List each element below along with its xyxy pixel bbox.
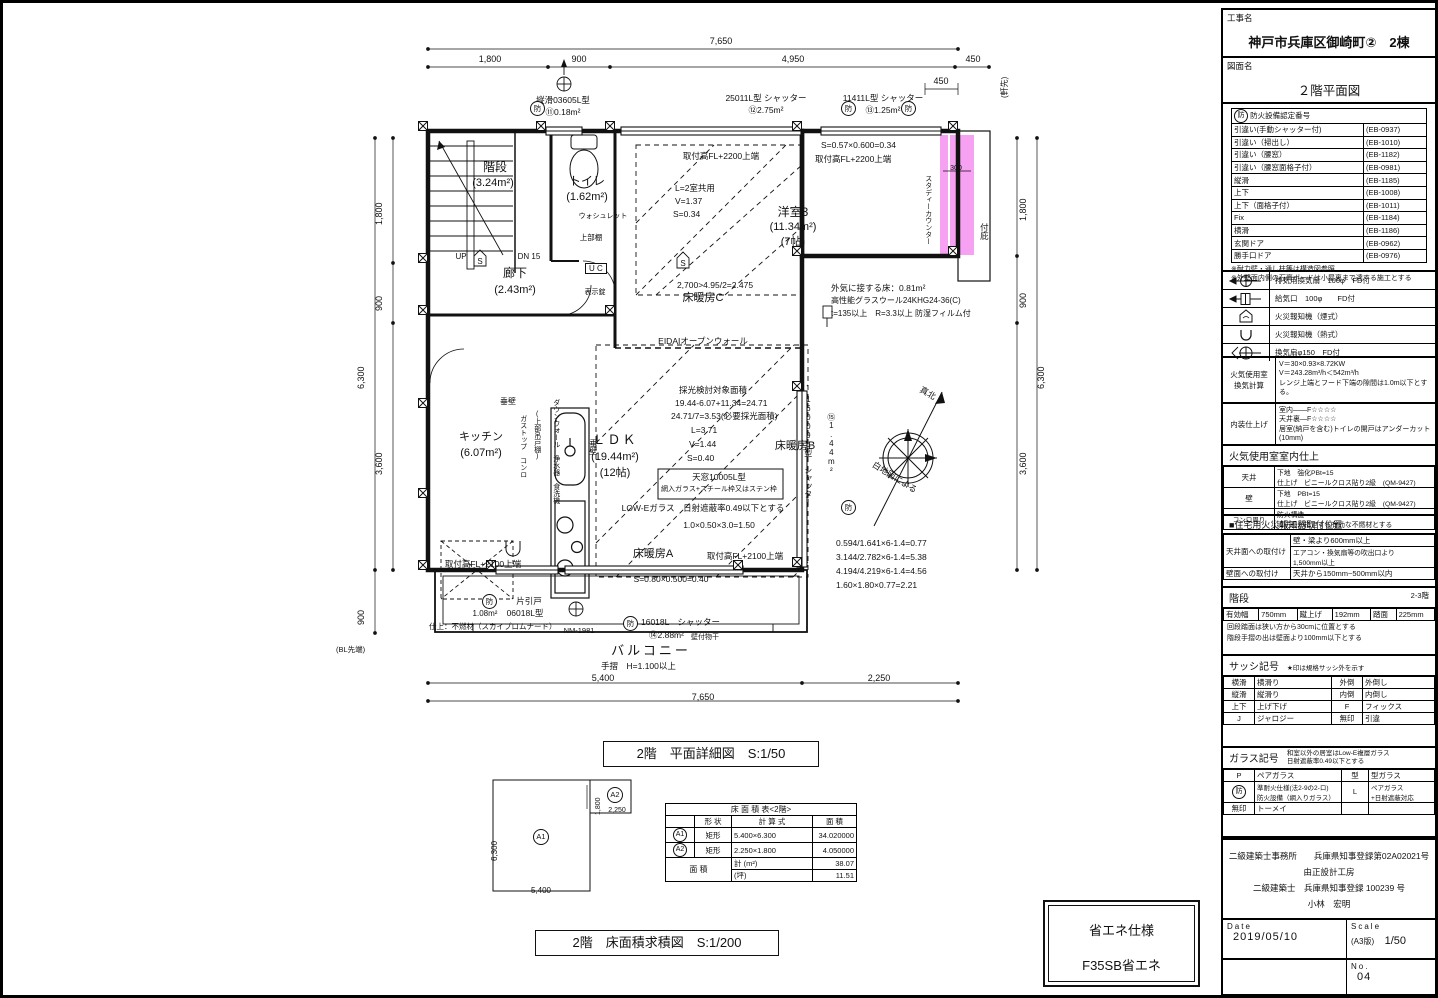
area-diagram <box>483 773 663 903</box>
mount-height-2100-b: 取付高FL+2100上端 <box>707 552 783 561</box>
compass-icon <box>874 392 945 526</box>
project-name: 神戸市兵庫区御崎町② 2棟 <box>1223 32 1435 51</box>
sash-legend-section: サッシ記号 ★印は規格サッシ外を示す 横滑横滑り外倒外倒し 縦滑縦滑り内倒内倒し… <box>1223 656 1435 748</box>
office-line-4: 小林 宏明 <box>1223 896 1435 912</box>
floor-heating-c-label: 床暖房C <box>683 292 724 304</box>
project-name-block: 工事名 神戸市兵庫区御崎町② 2棟 <box>1223 10 1435 58</box>
dim-right-1800: 1,800 <box>1019 198 1029 221</box>
eaves-label: 付庇 <box>979 223 988 240</box>
calc-s040: S=0.40 <box>687 454 714 463</box>
heat-detector-icon <box>1223 326 1270 343</box>
fire-mark: 防 <box>623 616 638 631</box>
architect-block: 二級建築士事務所 兵庫県知事登録第02A02021号 由正設計工房 二級建築士 … <box>1223 838 1435 920</box>
daylight-calc-1: 採光検討対象面積 <box>679 386 747 395</box>
dim-left-900: 900 <box>375 296 385 311</box>
fire-mark-icon: 防 <box>1234 109 1248 123</box>
exhaust-fan-icon <box>1223 272 1270 289</box>
interior-finish-section: 内装仕上げ 室内——F☆☆☆☆ 天井裏—F☆☆☆☆ 居室(納戸を含む)トイレの開… <box>1223 404 1435 446</box>
mount-height-2200-right: 取付高FL+2200上端 <box>815 155 891 164</box>
table-total-row: 面 積 計 (m²) 38.07 <box>666 858 857 870</box>
legend-row: 排気用換気扇 100φ FD付 <box>1223 272 1435 290</box>
calc-s080: S=0.80×0.500=0.40 <box>634 575 709 584</box>
empty-cell <box>1223 960 1347 996</box>
glass-title: ガラス記号 <box>1229 750 1279 765</box>
area-mark-a1: A1 <box>533 829 549 845</box>
fire-cert-title: 防火設備認定番号 <box>1250 111 1310 120</box>
eco-spec-line2: F35SB省エネ <box>1049 955 1194 974</box>
legend-row: 給気口 100φ FD付 <box>1223 290 1435 308</box>
glass-row: 防準耐火仕様(法2-9の2-ロ) 防火設備（網入りガラス）Lペアガラス +日射遮… <box>1224 781 1435 802</box>
date-label: Date <box>1227 922 1342 931</box>
dim-nokisaki: (軒先) <box>1001 77 1010 98</box>
stairs-title: 階段 <box>1229 590 1249 605</box>
window-label-12: 25011L型 シャッター <box>725 94 806 103</box>
col-area: 面 積 <box>813 816 857 828</box>
table-row: A1 矩形 5.400×6.300 34.020000 <box>666 828 857 843</box>
room-hall-area: (2.43m²) <box>494 284 536 296</box>
fire-row: 上下（面格子付）(EB-1011) <box>1232 199 1427 212</box>
calc-s057: S=0.57×0.600=0.34 <box>821 141 896 150</box>
calc-l2room: L=2室共用 <box>675 184 715 193</box>
sash-row: 縦滑縦滑り内倒内倒し <box>1224 689 1435 701</box>
scale-paper: (A3版) <box>1351 937 1374 946</box>
stairs-up-label: UP <box>455 253 466 262</box>
room-toilet-area: (1.62m²) <box>566 191 608 203</box>
calc-l371: L=3.71 <box>691 426 717 435</box>
balcony-finish-note: 仕上：不燃材（スカイプロムナード） <box>429 623 557 631</box>
downwall-label: ダウンウォール 浄水器 食洗機 <box>552 399 560 504</box>
area-dim-2250: 2,250 <box>608 807 626 815</box>
fire-row: 引違い（腰窓面格子付）(EB-0981) <box>1232 161 1427 174</box>
gas-stove-label: ガストップ コンロ <box>519 415 527 478</box>
sliding-door-area: 1.08m² <box>473 610 498 619</box>
dim-bottom-2250: 2,250 <box>868 674 891 684</box>
no-label: No. <box>1351 962 1431 971</box>
finish-row: 天井 下地 強化PBt=15 仕上げ ビニールクロス貼り2級 (QM-9427) <box>1224 467 1435 488</box>
tarekabe-label-2: 垂壁 <box>588 439 597 455</box>
legend-label: 給気口 100φ FD付 <box>1270 293 1355 304</box>
dim-300: 300 <box>950 165 962 173</box>
daylight-calc-2: 19.44-6.07+11.34=24.71 <box>675 399 767 408</box>
shutter-16009-area: ⑮1.44m² <box>826 413 835 475</box>
area-mark-a2: A2 <box>607 787 623 803</box>
office-line-1: 二級建築士事務所 兵庫県知事登録第02A02021号 <box>1223 848 1435 864</box>
stairs-values-row: 有効幅750mm 蹴上げ192mm 踏面225mm <box>1224 609 1435 621</box>
floor-heating-a-label: 床暖房A <box>633 548 673 560</box>
smoke-detector-icon <box>1223 308 1270 325</box>
dim-top-450a: 450 <box>965 55 980 65</box>
low-e-note: LOW-Eガラス 日射遮蔽率0.49以下とする <box>622 504 785 513</box>
room-ldk-jo: (12帖) <box>600 467 631 479</box>
tarekabe-label-1: 垂壁 <box>500 398 516 407</box>
row-mark: A2 <box>673 843 687 857</box>
number-row: No. 04 <box>1223 960 1435 996</box>
finish-row: 壁 下地 PBt=15 仕上げ ビニールクロス貼り2級 (QM-9427) <box>1224 488 1435 509</box>
fire-row: 縦滑(EB-1185) <box>1232 174 1427 187</box>
room-yoshitsu3-jo: (7帖) <box>781 236 805 248</box>
dim-top-1800: 1,800 <box>479 55 502 65</box>
dim-top-total: 7,650 <box>710 37 733 47</box>
mount-height-2100-a: 取付高FL+2100上端 <box>445 560 521 569</box>
room-kitchen: キッチン <box>459 431 503 443</box>
shutter-16009-label: 16009L型 シャッター <box>803 395 812 506</box>
room-stairs: 階段 <box>483 161 507 174</box>
calc-s034: S=0.34 <box>673 210 700 219</box>
room-kitchen-area: (6.07m²) <box>460 447 502 459</box>
glass-note: 和室以外の居室はLow-E複層ガラス 日射遮蔽率0.49以下とする <box>1287 750 1390 766</box>
right-calc-1: 0.594/1.641×6-1.4=0.77 <box>836 539 927 548</box>
fire-mark: 防 <box>482 594 497 609</box>
area-title-box: 2階 床面積求積図 S:1/200 <box>535 930 779 956</box>
dim-left-900b: 900 <box>357 610 367 625</box>
washlet-label: ウォシュレット <box>579 213 628 221</box>
eidai-open-wall-label: EIDAIオープンウォール <box>658 337 748 346</box>
handrail-note: 手摺 H=1.100以上 <box>601 662 676 671</box>
sash-title: サッシ記号 <box>1229 658 1279 673</box>
area-dim-5400: 5,400 <box>531 887 551 896</box>
hanging-cabinet-label: (上部吊戸棚) <box>533 411 541 460</box>
dim-top-900: 900 <box>571 55 586 65</box>
table-row: A2 矩形 2.250×1.800 4.050000 <box>666 843 857 858</box>
door-arc <box>430 349 464 383</box>
stairs-dn-label: DN 15 <box>518 253 541 262</box>
office-line-2: 由正設計工房 <box>1223 864 1435 880</box>
study-counter-label: スタディーカウンター <box>924 175 932 245</box>
date-cell: Date 2019/05/10 <box>1223 920 1347 958</box>
dim-top-450b: 450 <box>933 77 948 87</box>
window-area-12: ⑫2.75m² <box>749 106 784 115</box>
col-formula: 計 算 式 <box>732 816 813 828</box>
skylight-label-2: 網入ガラス+スチール枠又はステン枠 <box>661 486 777 494</box>
room-hall: 廊下 <box>503 267 527 280</box>
legend-label: 火災報知機（熱式） <box>1270 329 1343 340</box>
note-outdoor-floor-1: 外気に接する床：0.81m² <box>831 284 925 293</box>
scale-value: 1/50 <box>1385 935 1406 947</box>
fire-cert-section: 防 防火設備認定番号 引違い(手動シャッター付)(EB-0937) 引違い（掃出… <box>1223 104 1435 272</box>
info-panel: 工事名 神戸市兵庫区御崎町② 2棟 図面名 ２階平面図 防 防火設備認定番号 引… <box>1221 8 1437 996</box>
fire-row: 玄関ドア(EB-0962) <box>1232 237 1427 250</box>
fire-row: 引違い（掃出し）(EB-1010) <box>1232 136 1427 149</box>
fire-row: 引違い(手動シャッター付)(EB-0937) <box>1232 124 1427 137</box>
interior-finish-label: 内装仕上げ <box>1223 404 1276 444</box>
plan-title-box: 2階 平面詳細図 S:1/50 <box>603 741 819 767</box>
fire-row: 勝手口ドア(EB-0976) <box>1232 249 1427 262</box>
uc-box: U C <box>585 263 607 274</box>
svg-text:S: S <box>477 257 482 266</box>
mount-height-2200-left: 取付高FL+2200上端 <box>683 152 759 161</box>
sash-row: 横滑横滑り外倒外倒し <box>1224 677 1435 689</box>
dim-left-1800: 1,800 <box>375 202 385 225</box>
legend-label: 排気用換気扇 100φ FD付 <box>1270 275 1370 286</box>
room-finish-title: 火気使用室室内仕上 <box>1223 446 1435 466</box>
upper-shelf-label: 上部棚 <box>580 234 603 242</box>
ventilation-calc-value: V＝30×0.93×8.72KW V＝243.28m³/h＜542m³/h レン… <box>1276 358 1435 402</box>
room-ldk-area: (19.44m²) <box>591 451 639 463</box>
scale-label: Scale <box>1351 922 1431 931</box>
room-ldk: ＬＤＫ <box>592 433 637 447</box>
room-yoshitsu3: 洋室3 <box>778 206 809 219</box>
fire-mark-icon: 防 <box>1232 785 1246 799</box>
fire-row: 引違い（腰窓）(EB-1182) <box>1232 149 1427 162</box>
nm-code: NM-1981 <box>564 627 595 635</box>
ventilation-calc-label: 火気使用室 換気計算 <box>1223 358 1276 402</box>
legend-label: 換気扇φ150 FD付 <box>1270 347 1340 358</box>
svg-text:S: S <box>680 259 685 268</box>
row-mark: A1 <box>673 828 687 842</box>
dim-bl-label: (BL先端) <box>336 646 365 654</box>
dim-right-900: 900 <box>1019 293 1029 308</box>
scale-cell: Scale (A3版) 1/50 <box>1347 920 1435 958</box>
stairs-section: 階段 2-3階 有効幅750mm 蹴上げ192mm 踏面225mm 回段踏面は狭… <box>1223 588 1435 656</box>
dim-right-3600: 3,600 <box>1019 452 1029 475</box>
legend-section: 排気用換気扇 100φ FD付 給気口 100φ FD付 火災報知機（煙式） 火… <box>1223 272 1435 358</box>
floor-area-table: 床 面 積 表<2階> 形 状 計 算 式 面 積 A1 矩形 5.400×6.… <box>665 803 857 882</box>
window-area-13: ⑬1.25m² <box>866 106 901 115</box>
fire-row: 横滑(EB-1186) <box>1232 224 1427 237</box>
fire-mark: 防 <box>901 101 916 116</box>
calc-v144: V=1.44 <box>689 440 716 449</box>
daylight-calc-3: 24.71/7=3.53(必要採光面積) <box>671 412 778 421</box>
area-dim-1800: 1,800 <box>595 797 603 815</box>
window-label-11: 縦滑03605L型 <box>536 96 590 105</box>
fire-row: 上下(EB-1008) <box>1232 186 1427 199</box>
no-cell: No. 04 <box>1347 960 1435 996</box>
dim-bottom-5400: 5,400 <box>592 674 615 684</box>
interior-finish-value: 室内——F☆☆☆☆ 天井裏—F☆☆☆☆ 居室(納戸を含む)トイレの開戸はアンダー… <box>1276 404 1435 444</box>
dim-left-6300: 6,300 <box>357 366 367 389</box>
right-calc-3: 4.194/4.219×6-1.4=4.56 <box>836 567 927 576</box>
drawing-label: 図面名 <box>1227 60 1253 72</box>
sash-row: Jジャロジー無印引違 <box>1224 713 1435 725</box>
project-label: 工事名 <box>1227 12 1253 24</box>
supply-vent-icon <box>1223 290 1270 307</box>
sliding-door-label-1: 片引戸 <box>516 597 542 606</box>
fire-row: Fix(EB-1184) <box>1232 212 1427 225</box>
sash-note: ★印は規格サッシ外を示す <box>1287 662 1364 672</box>
stairs-floors: 2-3階 <box>1411 590 1429 605</box>
col-shape: 形 状 <box>695 816 732 828</box>
office-line-3: 二級建築士 兵庫県知事登録 100239 号 <box>1223 880 1435 896</box>
calc-150: 1.0×0.50×3.0=1.50 <box>683 521 755 530</box>
alarm-title: ■住宅用火災報知器取付位置 <box>1223 516 1435 534</box>
floor-area-table-title: 床 面 積 表<2階> <box>666 804 857 816</box>
laundry-pole-label: 壁付物干 <box>691 634 719 642</box>
glass-row: Pペアガラス型型ガラス <box>1224 769 1435 781</box>
area-dim-6300: 6,300 <box>491 841 500 861</box>
glass-row: 無印トーメイ <box>1224 802 1435 814</box>
fire-mark: 防 <box>841 500 856 515</box>
fire-mark: 防 <box>530 101 545 116</box>
skylight-label-1: 天窓10005L型 <box>692 473 746 482</box>
drawing-name-block: 図面名 ２階平面図 <box>1223 58 1435 104</box>
calc-v137: V=1.37 <box>675 197 702 206</box>
alarm-position-section: ■住宅用火災報知器取付位置 天井面への取付け 壁・梁より600mm以上 エアコン… <box>1223 516 1435 588</box>
sash-row: 上下上げ下げFフィックス <box>1224 701 1435 713</box>
alarm-row: 壁面への取付け 天井から150mm~500mm以内 <box>1224 568 1435 580</box>
drawing-sheet: S S 7,650 1,800 900 4,950 4 <box>0 0 1438 998</box>
eco-spec-line1: 省エネ仕様 <box>1049 920 1194 939</box>
legend-row: 火災報知機（熱式） <box>1223 326 1435 344</box>
stairs-notes: 回段踏面は狭い方から30cmに位置とする 階段手摺の出は壁面より100mm以下と… <box>1223 621 1435 646</box>
dim-top-4950: 4,950 <box>782 55 805 65</box>
window-area-11: ⑪0.18m² <box>546 108 581 117</box>
right-calc-2: 3.144/2.782×6-1.4=5.38 <box>836 553 927 562</box>
room-toilet: トイレ <box>569 175 605 188</box>
note-outdoor-floor-3: t=135以上 R=3.3以上 防湿フィルム付 <box>831 310 971 319</box>
eco-spec-box: 省エネ仕様 F35SB省エネ <box>1043 900 1200 987</box>
sliding-door-label-2: 06018L型 <box>507 609 544 618</box>
floor-heating-c-area <box>636 145 803 295</box>
note-outdoor-floor-2: 高性能グラスウール24KHG24-36(C) <box>831 297 961 306</box>
date-value: 2019/05/10 <box>1227 931 1342 943</box>
date-scale-row: Date 2019/05/10 Scale (A3版) 1/50 <box>1223 920 1435 960</box>
fire-mark: 防 <box>841 101 856 116</box>
room-finish-section: 火気使用室室内仕上 天井 下地 強化PBt=15 仕上げ ビニールクロス貼り2級… <box>1223 446 1435 516</box>
balcony-label: バルコニー <box>611 644 691 658</box>
dim-bottom-7650: 7,650 <box>692 693 715 703</box>
ventilation-calc-section: 火気使用室 換気計算 V＝30×0.93×8.72KW V＝243.28m³/h… <box>1223 358 1435 404</box>
room-stairs-area: (3.24m²) <box>472 177 514 189</box>
indicator-lock-label: 表示錠 <box>585 289 606 297</box>
drawing-name: ２階平面図 <box>1223 80 1435 99</box>
glass-legend-section: ガラス記号 和室以外の居室はLow-E複層ガラス 日射遮蔽率0.49以下とする … <box>1223 748 1435 838</box>
room-yoshitsu3-area: (11.34m²) <box>770 221 817 233</box>
shutter-16018-area: ⑭2.88m² <box>649 631 684 640</box>
calc-2700: 2,700>4.95/2=2.475 <box>677 281 753 290</box>
dim-left-3600: 3,600 <box>375 452 385 475</box>
shutter-16018-label: 16018L シャッター <box>641 618 720 627</box>
right-calc-4: 1.60×1.80×0.77=2.21 <box>836 581 917 590</box>
alarm-row: 天井面への取付け 壁・梁より600mm以上 <box>1224 535 1435 547</box>
legend-label: 火災報知機（煙式） <box>1270 311 1343 322</box>
no-value: 04 <box>1351 971 1431 983</box>
legend-row: 火災報知機（煙式） <box>1223 308 1435 326</box>
dim-right-6300: 6,300 <box>1037 366 1047 389</box>
